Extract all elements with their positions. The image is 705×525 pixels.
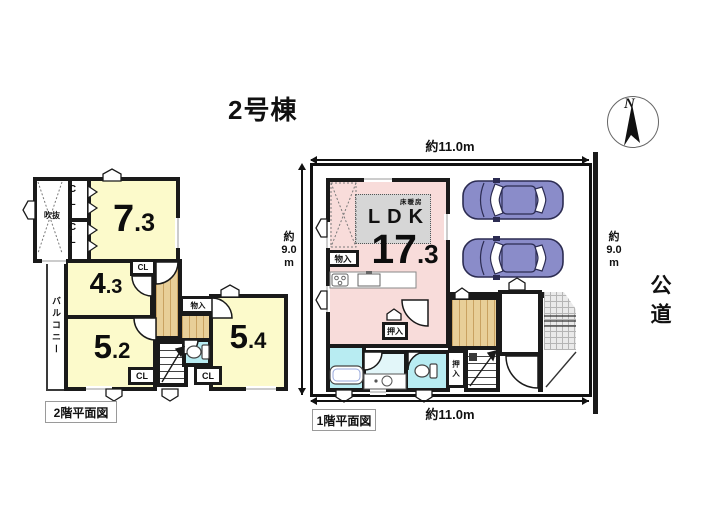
- arrowhead: [310, 156, 317, 164]
- compass-north-label: N: [624, 96, 635, 113]
- dim-left-line: [301, 165, 303, 395]
- room-size-7-3: 7.3: [94, 198, 174, 241]
- floor2-caption-box: 2階平面図: [45, 401, 117, 423]
- arrowhead: [298, 388, 306, 395]
- floor1-caption: 1階平面図: [317, 412, 372, 429]
- room-size-4-3: 4.3: [70, 268, 142, 301]
- text-layer: 2号棟 N 吹抜 CL CL バルコニー 7.3 4.3 5.2 5.4 2階平…: [0, 0, 705, 525]
- arrowhead: [582, 397, 589, 405]
- floor1-caption-box: 1階平面図: [312, 409, 376, 431]
- room-size-5-2: 5.2: [74, 328, 150, 366]
- void-label: 吹抜: [39, 210, 65, 221]
- size-int: 17: [371, 226, 417, 273]
- size-dec: .2: [112, 338, 130, 364]
- size-dec: .3: [417, 239, 439, 270]
- dim-text: m: [601, 257, 627, 270]
- closet-label-vertical: CL: [67, 184, 77, 210]
- dim-text: 9.0: [601, 244, 627, 257]
- dim-bottom-line: [311, 400, 589, 402]
- size-dec: .4: [248, 328, 266, 354]
- floor2-caption: 2階平面図: [54, 404, 109, 421]
- size-int: 4: [90, 268, 106, 301]
- size-dec: .3: [134, 209, 155, 238]
- size-int: 7: [113, 198, 134, 241]
- dim-text: 約: [276, 231, 302, 244]
- size-int: 5: [230, 318, 248, 356]
- room-size-5-4: 5.4: [216, 318, 280, 356]
- floor-heating-label: 床暖房: [400, 196, 423, 206]
- arrowhead: [298, 163, 306, 170]
- size-int: 5: [94, 328, 112, 366]
- dim-top-label: 約11.0m: [398, 136, 502, 155]
- dim-left-label: 約 9.0 m: [276, 231, 302, 270]
- dim-bottom-label: 約11.0m: [398, 404, 502, 423]
- balcony-label: バルコニー: [50, 296, 63, 356]
- page-title: 2号棟: [228, 90, 297, 127]
- room-size-17-3: 17.3: [362, 226, 448, 273]
- dim-right-label: 約 9.0 m: [601, 231, 627, 270]
- arrowhead: [310, 397, 317, 405]
- road-label: 公道: [644, 274, 674, 332]
- size-dec: .3: [106, 276, 123, 299]
- floorplan-page: CL 物入 CL CL 物入 押入 押入: [0, 0, 705, 525]
- dim-text: 約: [601, 231, 627, 244]
- arrowhead: [582, 156, 589, 164]
- dim-text: m: [276, 257, 302, 270]
- dim-top-line: [311, 159, 589, 161]
- closet-label-vertical: CL: [67, 222, 77, 248]
- dim-text: 9.0: [276, 244, 302, 257]
